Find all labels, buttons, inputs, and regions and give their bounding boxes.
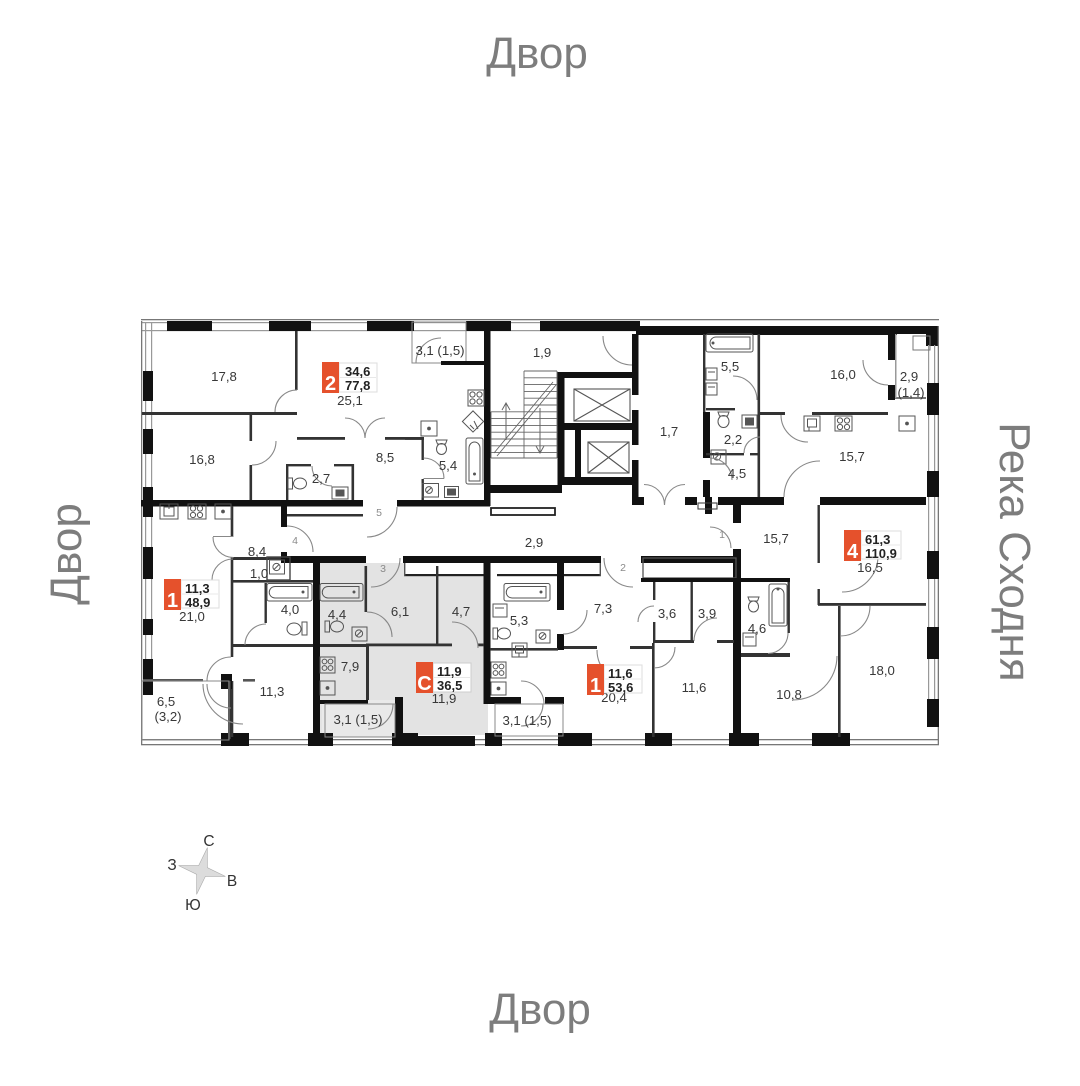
svg-text:3: 3 (380, 563, 386, 575)
svg-text:2: 2 (620, 562, 626, 574)
svg-text:Двор: Двор (486, 29, 588, 78)
svg-text:З: З (167, 857, 176, 874)
svg-text:16,8: 16,8 (189, 452, 215, 467)
svg-text:10,8: 10,8 (776, 687, 802, 702)
svg-text:11,6: 11,6 (682, 680, 707, 695)
svg-text:3,9: 3,9 (698, 606, 716, 621)
svg-text:1: 1 (167, 590, 178, 612)
svg-text:5,3: 5,3 (510, 613, 528, 628)
svg-text:36,5: 36,5 (437, 678, 462, 693)
svg-text:15,7: 15,7 (763, 531, 789, 546)
svg-text:4,0: 4,0 (281, 602, 299, 617)
svg-text:8,4: 8,4 (248, 544, 266, 559)
svg-text:2,9: 2,9 (525, 535, 543, 550)
svg-text:53,6: 53,6 (608, 680, 633, 695)
svg-text:2: 2 (325, 373, 336, 395)
svg-text:61,3: 61,3 (865, 532, 890, 547)
svg-text:21,0: 21,0 (179, 609, 205, 624)
svg-text:4: 4 (292, 535, 298, 547)
svg-text:11,6: 11,6 (608, 666, 633, 681)
svg-text:4,6: 4,6 (748, 621, 766, 636)
svg-text:С: С (203, 833, 214, 850)
svg-text:3,1 (1,5): 3,1 (1,5) (502, 713, 551, 728)
svg-text:17,8: 17,8 (211, 369, 237, 384)
svg-text:110,9: 110,9 (865, 546, 897, 561)
svg-text:11,9: 11,9 (437, 664, 462, 679)
svg-text:4,7: 4,7 (452, 604, 470, 619)
svg-text:(1,4): (1,4) (897, 385, 924, 400)
svg-text:11,3: 11,3 (260, 684, 285, 699)
svg-text:7,9: 7,9 (341, 659, 359, 674)
svg-text:6,1: 6,1 (391, 604, 409, 619)
svg-text:Двор: Двор (42, 503, 91, 605)
svg-text:Ю: Ю (185, 897, 201, 914)
svg-text:8,5: 8,5 (376, 450, 394, 465)
svg-text:6,5: 6,5 (157, 694, 175, 709)
svg-text:16,0: 16,0 (830, 367, 856, 382)
svg-text:2,2: 2,2 (724, 432, 742, 447)
svg-text:С: С (417, 673, 431, 695)
svg-text:1: 1 (719, 529, 725, 541)
svg-text:5: 5 (376, 507, 382, 519)
svg-text:4,4: 4,4 (328, 607, 346, 622)
svg-text:В: В (227, 873, 237, 890)
svg-text:2,7: 2,7 (312, 471, 330, 486)
svg-text:2,9: 2,9 (900, 369, 918, 384)
svg-text:7,3: 7,3 (594, 601, 612, 616)
svg-text:11,3: 11,3 (185, 581, 210, 596)
svg-text:4: 4 (847, 541, 859, 563)
svg-text:48,9: 48,9 (185, 595, 210, 610)
svg-text:1,7: 1,7 (660, 424, 678, 439)
svg-text:5,4: 5,4 (439, 458, 457, 473)
svg-text:18,0: 18,0 (869, 663, 895, 678)
svg-text:15,7: 15,7 (839, 449, 865, 464)
svg-text:16,5: 16,5 (857, 560, 883, 575)
svg-text:1,9: 1,9 (533, 345, 551, 360)
svg-text:4,5: 4,5 (728, 466, 746, 481)
svg-text:25,1: 25,1 (337, 393, 363, 408)
svg-text:3,1 (1,5): 3,1 (1,5) (333, 712, 382, 727)
svg-text:3,6: 3,6 (658, 606, 676, 621)
svg-text:3,1 (1,5): 3,1 (1,5) (415, 343, 464, 358)
svg-text:1,0: 1,0 (250, 566, 268, 581)
svg-text:Двор: Двор (489, 985, 591, 1034)
svg-text:Река Сходня: Река Сходня (990, 422, 1039, 681)
svg-text:(3,2): (3,2) (154, 709, 181, 724)
svg-text:34,6: 34,6 (345, 364, 370, 379)
svg-text:11,9: 11,9 (432, 691, 457, 706)
svg-text:77,8: 77,8 (345, 378, 370, 393)
svg-text:5,5: 5,5 (721, 359, 739, 374)
svg-text:1: 1 (590, 675, 601, 697)
